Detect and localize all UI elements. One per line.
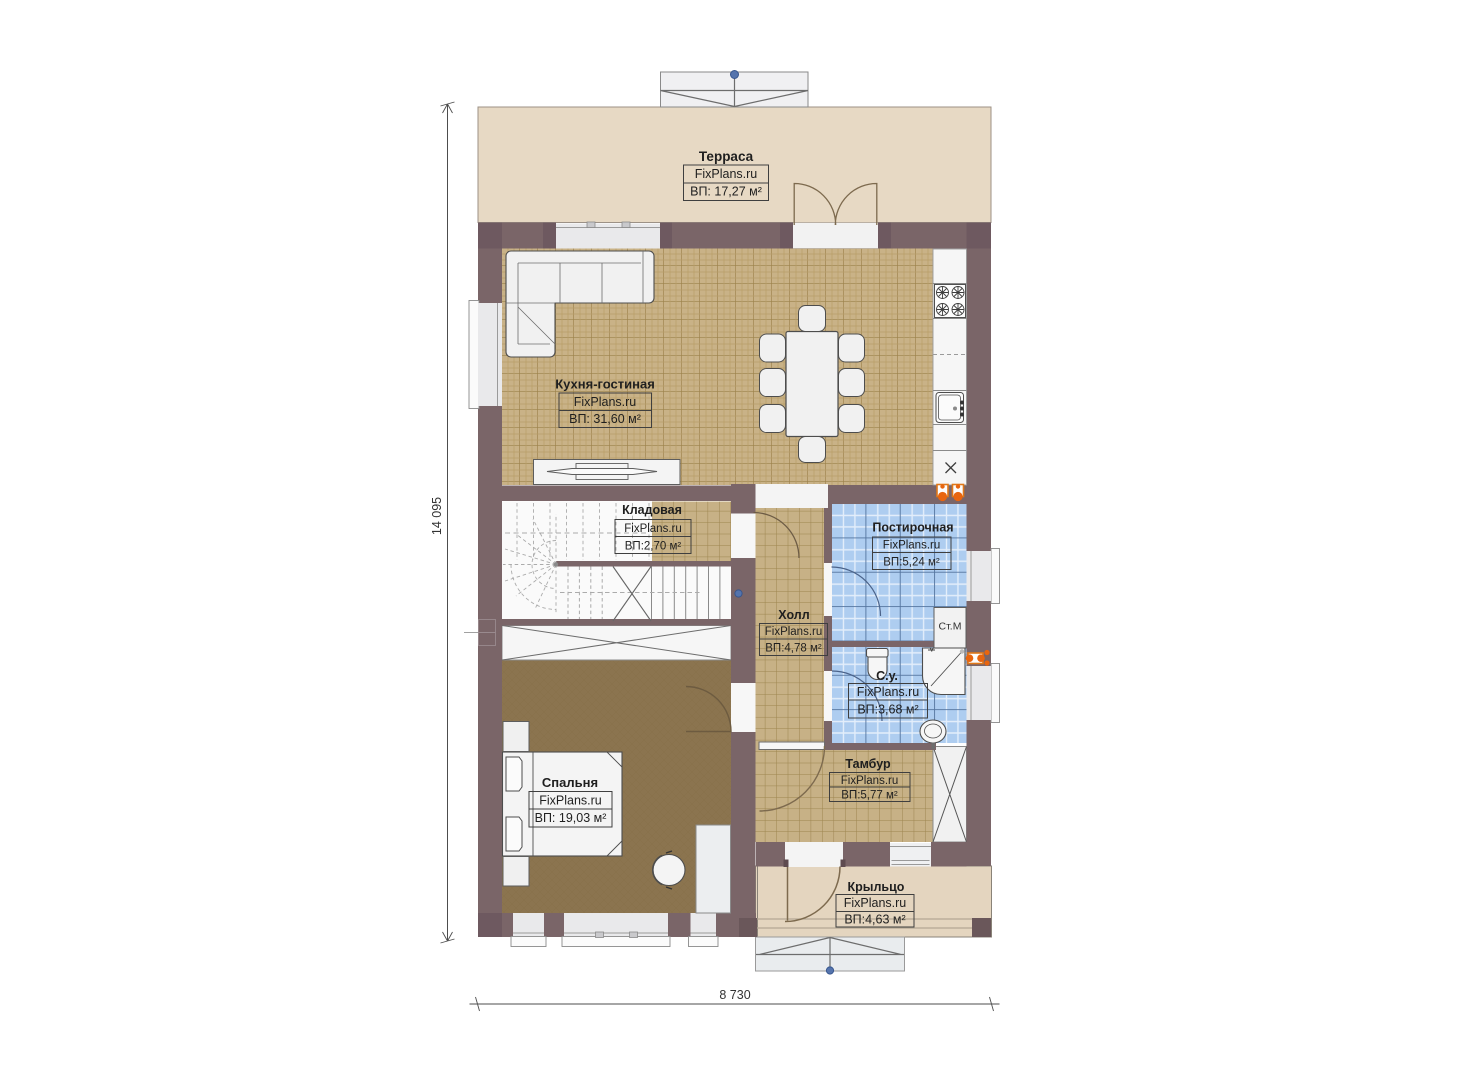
svg-text:Терраса: Терраса [699, 149, 754, 164]
svg-text:С.у.: С.у. [876, 669, 898, 683]
svg-text:FixPlans.ru: FixPlans.ru [695, 167, 758, 181]
svg-text:Кладовая: Кладовая [622, 503, 682, 517]
svg-text:8 730: 8 730 [719, 988, 750, 1002]
svg-text:ВП:5,77 м²: ВП:5,77 м² [841, 790, 898, 802]
svg-text:FixPlans.ru: FixPlans.ru [857, 685, 920, 699]
svg-text:FixPlans.ru: FixPlans.ru [841, 775, 899, 787]
svg-text:Спальня: Спальня [542, 775, 598, 790]
svg-text:ВП: 31,60 м²: ВП: 31,60 м² [569, 412, 641, 426]
svg-text:ВП:2,70 м²: ВП:2,70 м² [625, 541, 682, 553]
svg-text:ВП:3,68 м²: ВП:3,68 м² [857, 703, 918, 717]
svg-text:FixPlans.ru: FixPlans.ru [765, 626, 823, 638]
svg-text:Крыльцо: Крыльцо [848, 880, 905, 894]
svg-text:FixPlans.ru: FixPlans.ru [883, 540, 941, 552]
svg-text:ВП:4,63 м²: ВП:4,63 м² [844, 913, 905, 927]
svg-text:ВП:4,78 м²: ВП:4,78 м² [765, 643, 822, 655]
svg-text:FixPlans.ru: FixPlans.ru [539, 794, 602, 808]
svg-text:14 095: 14 095 [430, 497, 444, 535]
svg-text:Тамбур: Тамбур [845, 757, 891, 771]
svg-text:ВП: 19,03 м²: ВП: 19,03 м² [535, 811, 607, 825]
svg-text:FixPlans.ru: FixPlans.ru [574, 395, 637, 409]
svg-text:FixPlans.ru: FixPlans.ru [844, 896, 907, 910]
svg-text:Постирочная: Постирочная [872, 521, 953, 535]
svg-text:FixPlans.ru: FixPlans.ru [624, 523, 682, 535]
svg-text:ВП:5,24 м²: ВП:5,24 м² [883, 557, 940, 569]
svg-text:Ст.М: Ст.М [939, 621, 962, 633]
svg-text:ВП: 17,27 м²: ВП: 17,27 м² [690, 185, 762, 199]
svg-text:Кухня-гостиная: Кухня-гостиная [555, 377, 655, 392]
svg-text:Холл: Холл [778, 608, 809, 622]
